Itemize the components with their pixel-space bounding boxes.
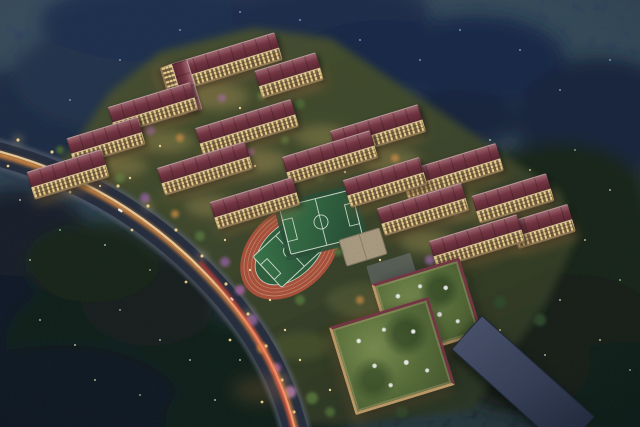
aerial-rendering	[0, 0, 640, 427]
terrain-layer	[0, 0, 640, 427]
